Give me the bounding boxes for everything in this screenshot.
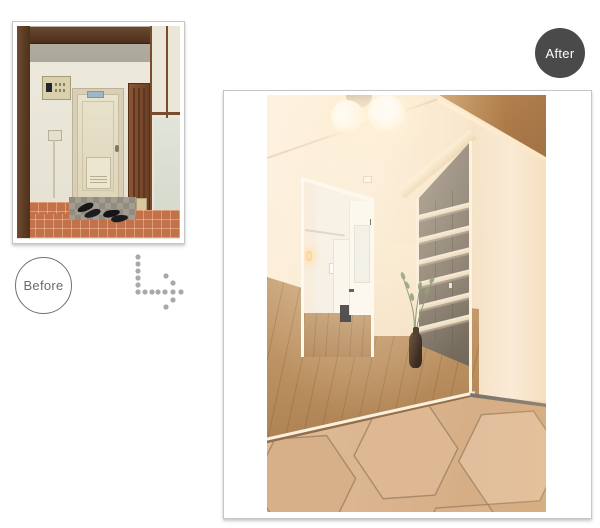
before-breaker-panel bbox=[42, 76, 71, 100]
after-hall-door-hinge bbox=[370, 219, 373, 225]
after-hallway-opening bbox=[301, 177, 374, 357]
before-glass-partition bbox=[150, 26, 180, 218]
after-badge-label: After bbox=[546, 46, 575, 61]
before-wood-post bbox=[17, 26, 30, 238]
before-tile-floor-left bbox=[29, 202, 71, 214]
before-shoes-pair-1 bbox=[77, 202, 103, 220]
after-hall-floor bbox=[304, 313, 371, 361]
after-hall-door-glass bbox=[354, 225, 370, 283]
before-photo-card[interactable] bbox=[12, 21, 185, 244]
before-door-frame bbox=[72, 88, 124, 199]
after-photo-card[interactable] bbox=[223, 90, 592, 519]
before-shoes-pair-2 bbox=[103, 208, 129, 226]
after-hall-door-handle bbox=[349, 289, 354, 292]
before-badge-label: Before bbox=[23, 278, 63, 293]
before-conduit bbox=[53, 140, 55, 198]
after-lamp-globe-right bbox=[368, 95, 405, 132]
page: { "page": { "bg": "#ffffff" }, "before_b… bbox=[0, 0, 600, 528]
after-vase bbox=[409, 332, 422, 368]
dotted-elbow-arrow-icon bbox=[130, 250, 188, 314]
before-door-knob bbox=[115, 145, 119, 152]
after-hallway-interior bbox=[304, 181, 371, 357]
after-shelf-1 bbox=[414, 201, 476, 223]
before-mail-slot bbox=[86, 157, 111, 189]
plant-branch bbox=[393, 267, 439, 335]
after-lamp-globe-left bbox=[331, 100, 364, 133]
after-hall-wall-lamp bbox=[306, 251, 312, 261]
after-photo bbox=[267, 95, 546, 512]
before-photo bbox=[17, 26, 180, 239]
before-breaker-row2 bbox=[55, 89, 66, 92]
after-shelf-3 bbox=[414, 246, 476, 268]
after-alcove-near-jamb bbox=[469, 141, 472, 397]
after-door-stopper bbox=[363, 176, 372, 183]
after-shelf-object bbox=[449, 283, 452, 288]
after-shelf-2 bbox=[414, 224, 476, 246]
before-door-nameplate bbox=[87, 91, 104, 98]
after-badge: After bbox=[535, 28, 585, 78]
before-light-switch bbox=[48, 130, 62, 141]
after-hall-open-door bbox=[349, 201, 376, 315]
before-breaker-switch bbox=[46, 83, 52, 92]
before-badge: Before bbox=[15, 257, 72, 314]
before-breaker-row bbox=[55, 83, 66, 86]
